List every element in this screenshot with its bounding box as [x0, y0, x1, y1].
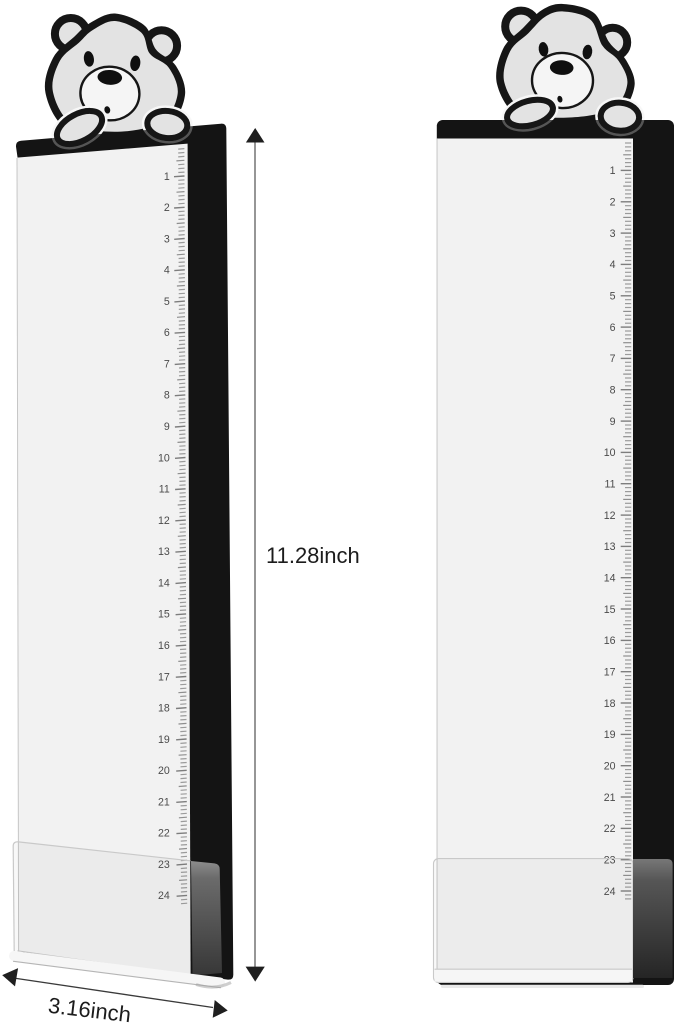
svg-text:4: 4 [164, 265, 170, 277]
svg-text:16: 16 [158, 640, 170, 652]
svg-text:12: 12 [158, 515, 170, 527]
svg-text:18: 18 [158, 703, 170, 715]
svg-text:2: 2 [610, 197, 616, 209]
svg-text:3.16inch: 3.16inch [47, 993, 133, 1027]
svg-text:6: 6 [164, 327, 170, 339]
svg-text:9: 9 [164, 421, 170, 433]
svg-text:1: 1 [610, 165, 616, 177]
svg-text:15: 15 [604, 604, 616, 616]
svg-text:22: 22 [604, 823, 616, 835]
svg-text:14: 14 [158, 577, 170, 589]
svg-text:17: 17 [158, 671, 170, 683]
svg-text:13: 13 [158, 546, 170, 558]
svg-text:21: 21 [604, 792, 616, 804]
svg-text:21: 21 [158, 796, 170, 808]
svg-text:4: 4 [610, 259, 616, 271]
svg-text:6: 6 [610, 322, 616, 334]
svg-text:8: 8 [164, 390, 170, 402]
svg-text:9: 9 [610, 416, 616, 428]
svg-text:11: 11 [159, 484, 170, 496]
svg-text:1: 1 [164, 171, 170, 183]
svg-text:3: 3 [164, 233, 170, 245]
svg-text:2: 2 [164, 202, 170, 214]
svg-text:7: 7 [610, 353, 616, 365]
svg-text:18: 18 [604, 698, 616, 710]
svg-text:11.28inch: 11.28inch [266, 543, 360, 568]
svg-text:5: 5 [610, 291, 616, 303]
svg-text:15: 15 [158, 609, 170, 621]
svg-text:16: 16 [604, 635, 616, 647]
svg-text:5: 5 [164, 296, 170, 308]
svg-text:10: 10 [604, 447, 616, 459]
svg-text:14: 14 [604, 573, 616, 585]
svg-text:19: 19 [604, 729, 616, 741]
svg-text:8: 8 [610, 385, 616, 397]
svg-text:22: 22 [158, 828, 170, 840]
svg-text:13: 13 [604, 541, 616, 553]
svg-text:10: 10 [158, 452, 170, 464]
svg-text:20: 20 [604, 761, 616, 773]
svg-text:17: 17 [604, 667, 616, 679]
svg-text:12: 12 [604, 510, 616, 522]
svg-text:19: 19 [158, 734, 170, 746]
svg-text:7: 7 [164, 359, 170, 371]
svg-text:11: 11 [605, 479, 616, 491]
svg-text:3: 3 [610, 228, 616, 240]
svg-text:20: 20 [158, 765, 170, 777]
